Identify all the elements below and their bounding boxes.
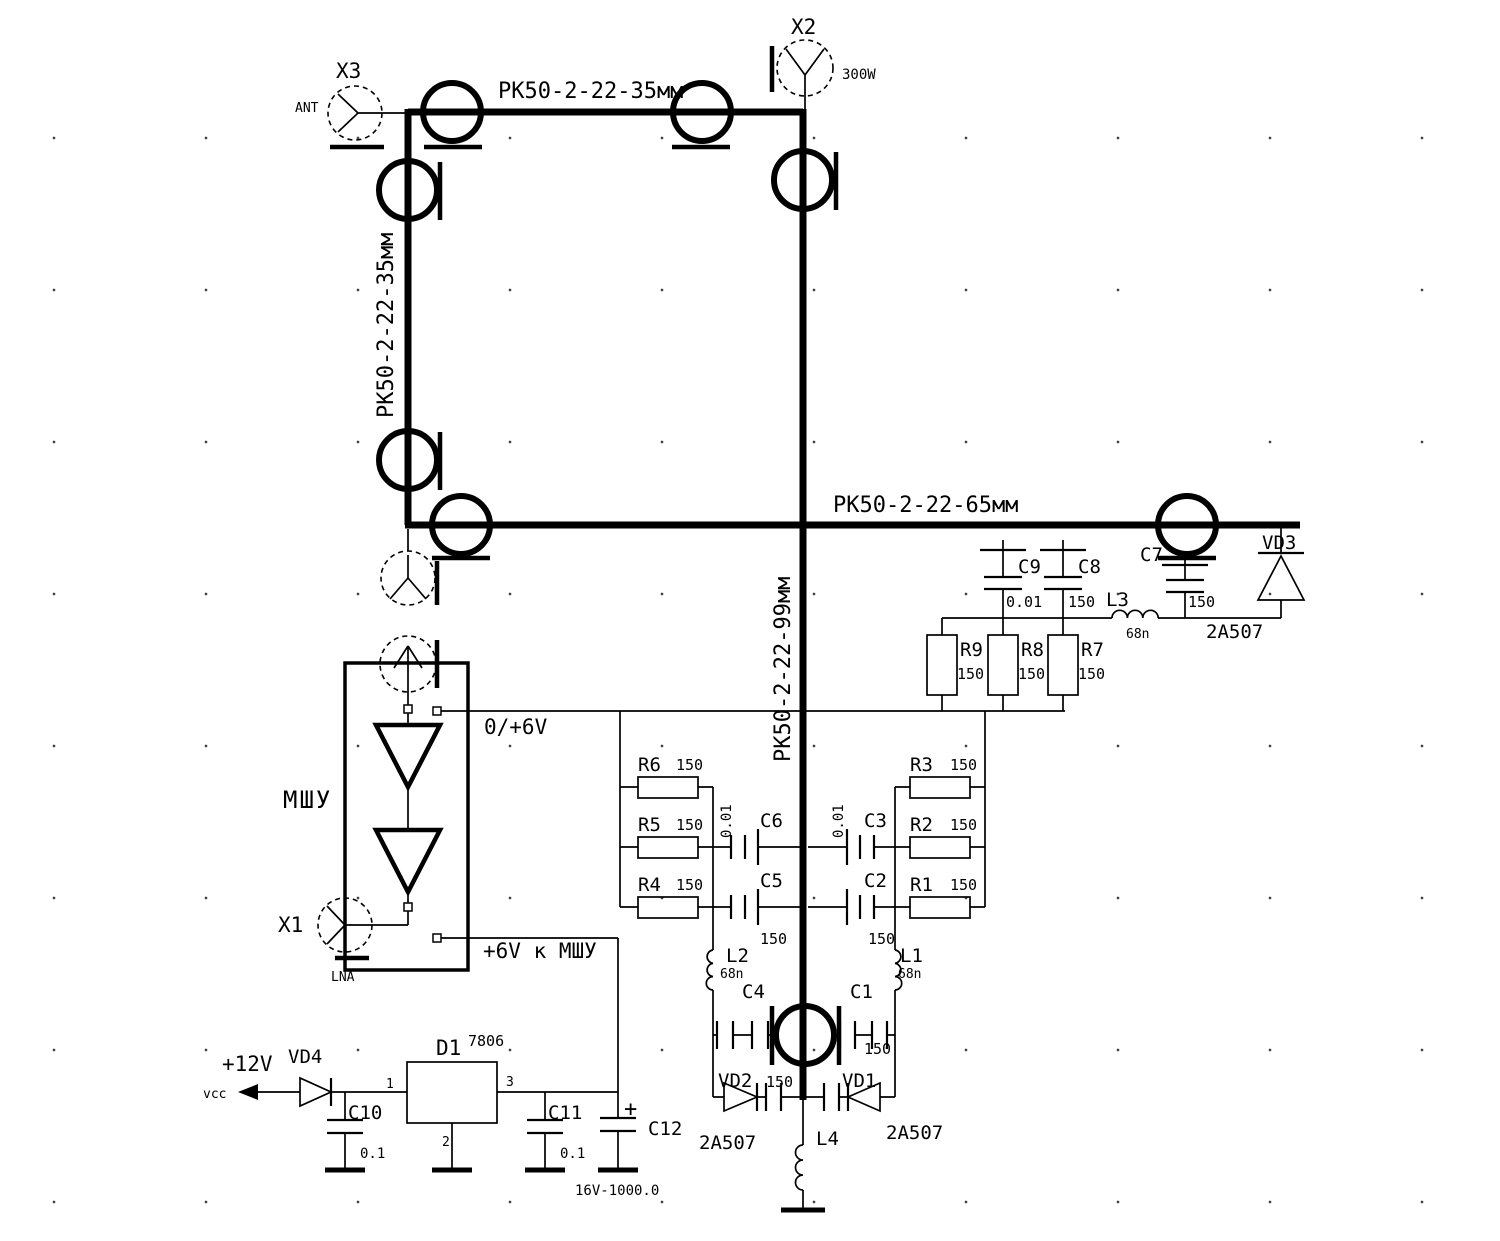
control-net-label: 0/+6V	[484, 715, 548, 739]
resistor-r9: R9 150	[927, 618, 984, 711]
resistor-r6-value: 150	[676, 756, 703, 774]
lna-name: МШУ	[283, 786, 332, 814]
capacitor-c1: C1 150	[839, 981, 895, 1058]
power-supply: +12V vcc VD4 C10 0.1 D1 7806 1 3	[203, 1032, 682, 1199]
resistor-r9-value: 150	[957, 665, 984, 683]
capacitor-c5: C5 150	[713, 870, 800, 948]
diode-vd1-ref: VD1	[842, 1070, 876, 1092]
capacitor-c3-ref: C3	[864, 810, 887, 832]
regulator-d1-pin-gnd: 2	[442, 1135, 450, 1150]
capacitor-c3-value: 0.01	[831, 804, 847, 838]
capacitor-c10: C10 0.1	[325, 1092, 385, 1170]
top-right-network: C9 0.01 C8 150 L3 68n C7 150 VD3	[927, 528, 1304, 711]
cable-label-right: РК50-2-22-65мм	[833, 493, 1018, 518]
resistor-r1-ref: R1	[910, 874, 933, 896]
supply-net: +6V к МШУ	[433, 934, 618, 1092]
diode-vd1-part: 2А507	[886, 1122, 943, 1144]
resistor-r1: R1 150	[895, 874, 985, 918]
resistor-r8-ref: R8	[1021, 639, 1044, 661]
connector-x2-ref: X2	[791, 15, 816, 39]
capacitor-c1-value: 150	[864, 1040, 891, 1058]
resistor-r5-ref: R5	[638, 814, 661, 836]
inductor-l3-value: 68n	[1126, 627, 1149, 642]
supply-net-label: +6V к МШУ	[483, 939, 597, 963]
capacitor-c12: + C12 16V-1000.0	[575, 1092, 682, 1199]
cable-label-top: РК50-2-22-35мм	[498, 79, 683, 104]
diode-vd4-ref: VD4	[288, 1046, 322, 1068]
resistor-r3-ref: R3	[910, 754, 933, 776]
capacitor-c6: C6 0.01	[713, 804, 800, 865]
capacitor-c2: C2 150	[808, 870, 895, 948]
inductor-l2-value: 68n	[720, 967, 743, 982]
capacitor-c9-ref: C9	[1018, 556, 1041, 578]
resistor-r6-ref: R6	[638, 754, 661, 776]
capacitor-c2-value: 150	[868, 930, 895, 948]
schematic-page: X3 ANT X2 300W РК50-2-22-35мм РК50-2-22-…	[0, 0, 1500, 1241]
diode-vd2-ref: VD2	[718, 1070, 752, 1092]
diode-vd3: VD3 2А507	[1206, 528, 1304, 643]
inductor-l3: L3 68n	[1106, 589, 1158, 642]
inductor-l1-value: 68n	[898, 967, 921, 982]
capacitor-c6-value: 0.01	[719, 804, 735, 838]
capacitor-c6-ref: C6	[760, 810, 783, 832]
regulator-d1-pin-out: 3	[506, 1075, 514, 1090]
resistor-r5-value: 150	[676, 816, 703, 834]
capacitor-c7-value: 150	[1188, 593, 1215, 611]
capacitor-c11: C11 0.1	[525, 1092, 585, 1170]
connector-x1: X1 LNA	[278, 898, 372, 985]
resistor-r7-value: 150	[1078, 665, 1105, 683]
connector-x3-ref: X3	[336, 59, 361, 83]
cable-label-center: РК50-2-22-99мм	[771, 577, 796, 762]
capacitor-c12-ref: C12	[648, 1118, 682, 1140]
resistor-r5: R5 150	[620, 814, 713, 858]
connector-x1-port: LNA	[331, 970, 355, 985]
connector-x3: X3 ANT	[295, 59, 405, 147]
regulator-d1-part: 7806	[468, 1032, 504, 1050]
capacitor-c5-ref: C5	[760, 870, 783, 892]
power-net-label: vcc	[203, 1087, 226, 1102]
connector-pair-icons	[380, 529, 437, 692]
resistor-r3-value: 150	[950, 756, 977, 774]
diode-vd3-ref: VD3	[1262, 532, 1296, 554]
cable-label-left: РК50-2-22-35мм	[374, 233, 399, 418]
control-net: 0/+6V	[433, 707, 1065, 739]
capacitor-c11-ref: C11	[548, 1102, 582, 1124]
capacitor-c3: C3 0.01	[808, 804, 895, 865]
resistor-r7: R7 150	[1048, 618, 1105, 711]
schematic-canvas: X3 ANT X2 300W РК50-2-22-35мм РК50-2-22-…	[0, 0, 1500, 1241]
capacitor-c11-value: 0.1	[560, 1146, 585, 1162]
resistor-r4-ref: R4	[638, 874, 661, 896]
resistor-r6: R6 150	[620, 754, 713, 798]
connector-x3-port: ANT	[295, 101, 319, 116]
capacitor-c8: C8 150	[1040, 540, 1101, 618]
resistor-r8-value: 150	[1018, 665, 1045, 683]
resistor-r1-value: 150	[950, 876, 977, 894]
connector-x1-ref: X1	[278, 913, 303, 937]
vcc-arrow-icon	[238, 1084, 258, 1100]
capacitor-c2-ref: C2	[864, 870, 887, 892]
resistor-r4-value: 150	[676, 876, 703, 894]
resistor-r2: R2 150	[895, 814, 985, 858]
regulator-d1-pin-in: 1	[386, 1077, 394, 1092]
capacitor-c1-ref: C1	[850, 981, 873, 1003]
capacitor-c10-value: 0.1	[360, 1146, 385, 1162]
diode-vd2-part: 2А507	[699, 1132, 756, 1154]
connector-x2: X2 300W	[772, 15, 876, 109]
inductor-l1-ref: L1	[900, 945, 923, 967]
capacitor-c4-ref: C4	[742, 981, 765, 1003]
resistor-r2-value: 150	[950, 816, 977, 834]
capacitor-c5-value: 150	[760, 930, 787, 948]
resistor-r4: R4 150	[620, 874, 713, 918]
capacitor-c10-ref: C10	[348, 1102, 382, 1124]
inductor-l2-ref: L2	[726, 945, 749, 967]
resistor-r8: R8 150	[988, 618, 1045, 711]
resistor-r2-ref: R2	[910, 814, 933, 836]
capacitor-c8-value: 150	[1068, 593, 1095, 611]
regulator-d1-ref: D1	[436, 1036, 461, 1060]
bottom-center: C4 150 C1 150 VD2 2А507 VD1 2А507	[699, 981, 943, 1210]
diode-vd3-part: 2А507	[1206, 621, 1263, 643]
capacitor-c7-ref: C7	[1140, 544, 1163, 566]
capacitor-c12-value: 16V-1000.0	[575, 1183, 659, 1199]
diode-vd4: VD4	[288, 1046, 407, 1106]
capacitor-c4-value: 150	[766, 1073, 793, 1091]
power-rail-label: +12V	[222, 1052, 273, 1076]
inductor-l3-ref: L3	[1106, 589, 1129, 611]
connector-x2-power: 300W	[842, 67, 876, 83]
capacitor-c9-value: 0.01	[1006, 593, 1042, 611]
capacitor-c8-ref: C8	[1078, 556, 1101, 578]
resistor-r3: R3 150	[895, 754, 985, 798]
inductor-l1: L1 68n	[895, 945, 923, 990]
resistor-r9-ref: R9	[960, 639, 983, 661]
inductor-l4: L4	[781, 1100, 839, 1210]
capacitor-c12-polarity: +	[624, 1097, 637, 1122]
capacitor-c9: C9 0.01	[980, 540, 1042, 618]
inductor-l4-ref: L4	[816, 1128, 839, 1150]
resistor-r7-ref: R7	[1081, 639, 1104, 661]
